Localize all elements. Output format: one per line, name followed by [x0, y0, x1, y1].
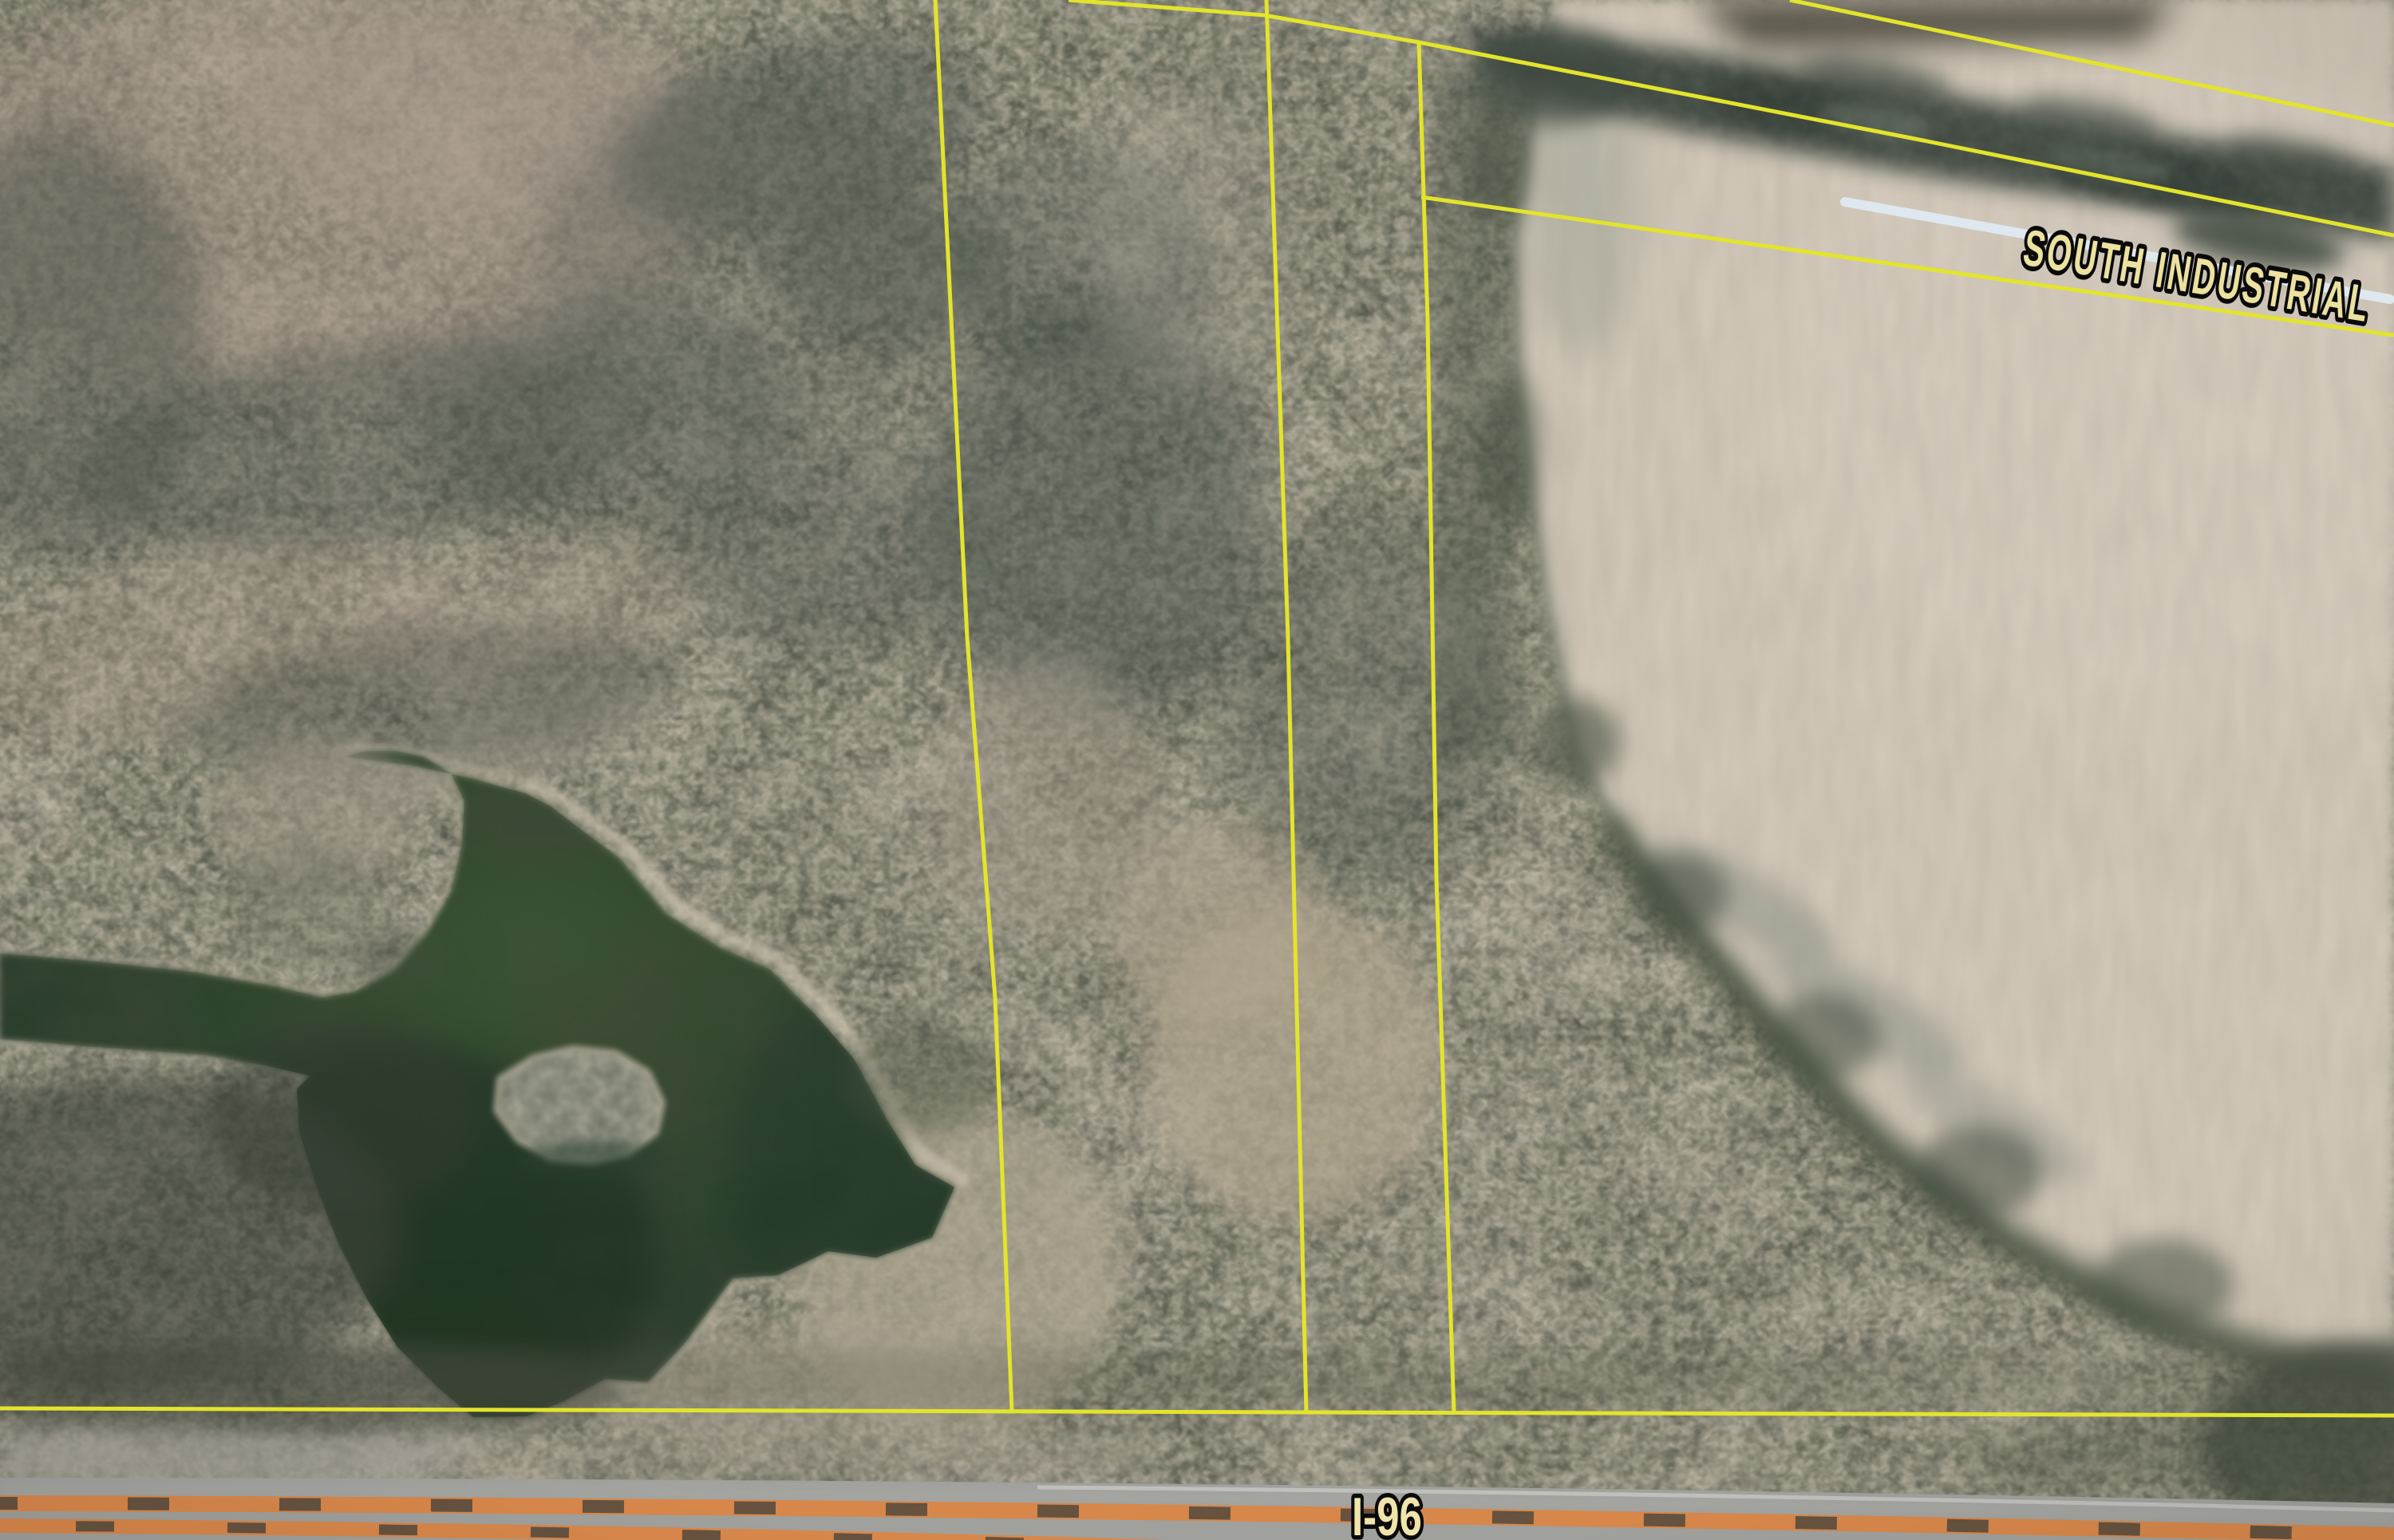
svg-text:I-96: I-96 [1352, 1487, 1422, 1540]
